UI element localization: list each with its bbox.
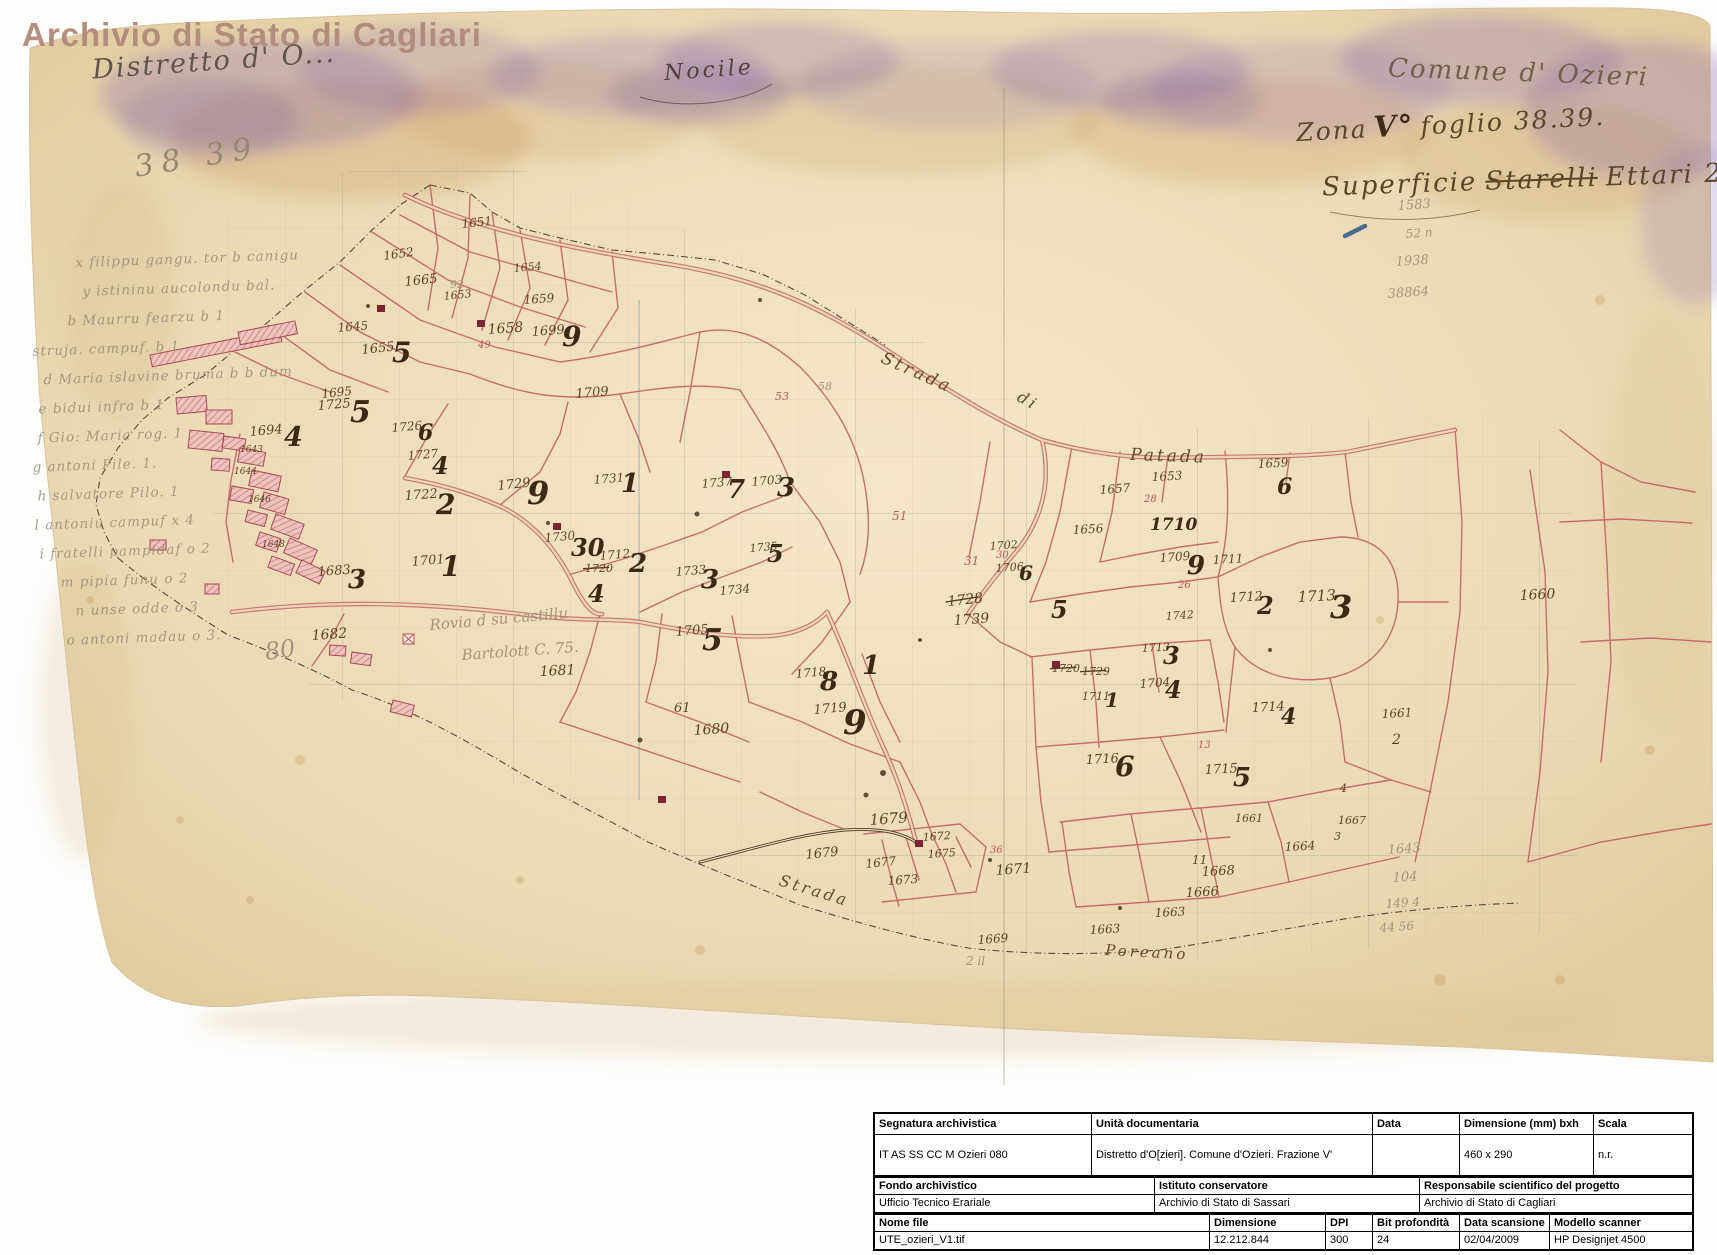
town-building bbox=[350, 652, 371, 666]
parcel-number: 7 bbox=[727, 475, 745, 505]
parcel-number: 1699 bbox=[531, 323, 565, 340]
parcel-number: 1663 bbox=[1154, 904, 1186, 920]
parcel-number: 104 bbox=[1392, 869, 1418, 886]
parcel-number: 28 bbox=[1143, 494, 1157, 505]
parcel-number: 1938 bbox=[1395, 253, 1429, 270]
parcel-number: 3 bbox=[348, 565, 366, 595]
table-value-distretto-d-o-zieri-comune-d-o: Distretto d'O[zieri]. Comune d'Ozieri. F… bbox=[1092, 1135, 1373, 1175]
table-value-460-x-290: 460 x 290 bbox=[1460, 1135, 1594, 1175]
parcel-number: 1657 bbox=[1099, 481, 1131, 497]
parcel-number: 9 bbox=[527, 474, 549, 512]
parcel-number: 1739 bbox=[953, 611, 990, 629]
parcel-number: 51 bbox=[892, 509, 907, 523]
building-marker bbox=[915, 840, 923, 847]
table-header-bit-profondit-: Bit profondità bbox=[1373, 1215, 1460, 1231]
parcel-number: 61 bbox=[674, 701, 691, 716]
parcel-number: 36 bbox=[990, 845, 1003, 856]
parcel-number: 1682 bbox=[311, 626, 348, 644]
parcel-number: 13 bbox=[1198, 740, 1211, 751]
parcel-number: 1663 bbox=[1089, 921, 1121, 937]
building-marker-cross bbox=[403, 634, 414, 644]
parcel-number: 1679 bbox=[869, 808, 909, 829]
table-header-responsabile-scientifico-del-p: Responsabile scientifico del progetto bbox=[1420, 1178, 1692, 1194]
parcel-number: 1643 bbox=[1387, 841, 1421, 858]
parcel-number: 1653 bbox=[1151, 468, 1183, 484]
parcel-number: 1712 bbox=[599, 546, 631, 563]
table-value-archivio-di-stato-di-cagliari: Archivio di Stato di Cagliari bbox=[1420, 1195, 1692, 1212]
parcel-number: 5 bbox=[1233, 763, 1251, 793]
building-marker bbox=[658, 796, 666, 803]
parcel-number: 2 bbox=[1256, 591, 1274, 620]
table-value-ute-ozieri-v1-tif: UTE_ozieri_V1.tif bbox=[875, 1232, 1210, 1249]
scan-metadata-table: Segnatura archivisticaUnità documentaria… bbox=[873, 1112, 1694, 1251]
margin-notes-list: x filippu gangu. tor b caniguy istininu … bbox=[23, 241, 313, 656]
parcel-number: 4 bbox=[432, 451, 449, 480]
table-value-n-r-: n.r. bbox=[1594, 1135, 1692, 1175]
parcel-number: 1668 bbox=[1201, 863, 1235, 880]
parcel-number: 1667 bbox=[1338, 814, 1366, 827]
parcel-number: 3 bbox=[1330, 588, 1352, 626]
parcel-number: 1659 bbox=[1257, 455, 1289, 471]
table-value-ufficio-tecnico-erariale: Ufficio Tecnico Erariale bbox=[875, 1195, 1155, 1212]
parcel-number: 1671 bbox=[995, 861, 1032, 879]
table-value-row: UTE_ozieri_V1.tif12.212.8443002402/04/20… bbox=[875, 1232, 1692, 1249]
parcel-number: 3 bbox=[701, 565, 719, 595]
parcel-number: 3 bbox=[777, 473, 795, 503]
parcel-number: 5 bbox=[392, 336, 411, 369]
parcel-number: 5 bbox=[767, 539, 784, 568]
parcel-number: 2 il bbox=[965, 954, 985, 968]
parcel-number: 9 bbox=[1187, 551, 1205, 581]
superficie-struck-word: Starelli bbox=[1477, 163, 1607, 197]
table-value-empty bbox=[1373, 1135, 1460, 1175]
parcel-number: 1659 bbox=[523, 291, 555, 307]
scanned-map-page: 1651165216541659166592165316451658491699… bbox=[0, 0, 1717, 1255]
table-header-fondo-archivistico: Fondo archivistico bbox=[875, 1178, 1155, 1194]
parcel-number: 1656 bbox=[1072, 521, 1104, 537]
table-value-row: IT AS SS CC M Ozieri 080Distretto d'O[zi… bbox=[875, 1135, 1692, 1176]
zona-number: V° bbox=[1367, 108, 1422, 145]
parcel-number: 6 bbox=[1019, 561, 1033, 585]
zona-word: Zona bbox=[1296, 114, 1369, 147]
parcel-number: 53 bbox=[775, 390, 789, 403]
superficie-word: Superficie bbox=[1322, 167, 1478, 202]
parcel-number: 1669 bbox=[977, 931, 1009, 947]
parcel-number: 44 56 bbox=[1378, 919, 1415, 935]
parcel-number: 1734 bbox=[719, 581, 751, 598]
table-header-istituto-conservatore: Istituto conservatore bbox=[1155, 1178, 1420, 1194]
parcel-number: 4 bbox=[1281, 704, 1296, 730]
parcel-number: 1660 bbox=[1519, 586, 1556, 604]
parcel-number: 4 bbox=[1165, 675, 1182, 704]
parcel-number: 52 n bbox=[1405, 225, 1433, 241]
parcel-number: 1702 bbox=[989, 538, 1018, 553]
parcel-number: 38864 bbox=[1387, 284, 1429, 302]
parcel-number: 2 bbox=[435, 488, 455, 521]
table-header-segnatura-archivistica: Segnatura archivistica bbox=[875, 1114, 1092, 1134]
table-header-row: Segnatura archivisticaUnità documentaria… bbox=[875, 1114, 1692, 1135]
building-marker bbox=[377, 305, 385, 312]
parcel-number: 1666 bbox=[1185, 884, 1219, 901]
parcel-number: 3 bbox=[1334, 830, 1341, 843]
table-value-hp-designjet-4500: HP Designjet 4500 bbox=[1550, 1232, 1692, 1249]
parcel-number: 9 bbox=[843, 703, 867, 743]
parcel-number: 149 4 bbox=[1385, 895, 1420, 911]
parcel-number: 1709 bbox=[575, 384, 609, 402]
parcel-number: 1658 bbox=[487, 320, 524, 338]
table-value-it-as-ss-cc-m-ozieri-080: IT AS SS CC M Ozieri 080 bbox=[875, 1135, 1092, 1175]
superficie-value: Ettari 296,04 bbox=[1605, 156, 1717, 193]
parcel-number: 1661 bbox=[1235, 812, 1263, 825]
parcel-number: 4 bbox=[588, 579, 605, 608]
parcel-number: 1645 bbox=[337, 318, 369, 335]
parcel-number: 1654 bbox=[513, 260, 542, 275]
parcel-number: 58 bbox=[818, 380, 832, 393]
road-label: Patada bbox=[1129, 445, 1207, 468]
table-header-dimensione: Dimensione bbox=[1210, 1215, 1326, 1231]
parcel-number: 1680 bbox=[693, 721, 730, 739]
parcel-number: 8 bbox=[819, 667, 838, 697]
parcel-number: 6 bbox=[418, 420, 433, 446]
parcel-number: 26 bbox=[1177, 580, 1191, 591]
parcel-number: 4 bbox=[1339, 782, 1347, 795]
parcel-number: 1 bbox=[1105, 688, 1119, 712]
parcel-number: 1731 bbox=[593, 470, 625, 487]
parcel-number: 1725 bbox=[317, 396, 351, 414]
table-header-dpi: DPI bbox=[1326, 1215, 1373, 1231]
parcel-number: 9 bbox=[562, 320, 581, 353]
parcel-number: 1683 bbox=[317, 563, 351, 580]
parcel-number: 49 bbox=[477, 340, 491, 351]
table-value-archivio-di-stato-di-sassari: Archivio di Stato di Sassari bbox=[1155, 1195, 1420, 1212]
table-header-nome-file: Nome file bbox=[875, 1215, 1210, 1231]
table-header-row: Nome fileDimensioneDPIBit profonditàData… bbox=[875, 1213, 1692, 1232]
parcel-number: 2 bbox=[1391, 732, 1401, 748]
parcel-number: 1722 bbox=[404, 487, 438, 504]
parcel-number: 1711 bbox=[1212, 551, 1243, 567]
table-header-scala: Scala bbox=[1594, 1114, 1692, 1134]
parcel-number: 1 bbox=[862, 651, 880, 681]
table-header-unit-documentaria: Unità documentaria bbox=[1092, 1114, 1373, 1134]
parcel-number: 5 bbox=[1051, 595, 1068, 624]
table-value-24: 24 bbox=[1373, 1232, 1460, 1249]
table-header-modello-scanner: Modello scanner bbox=[1550, 1215, 1692, 1231]
parcel-number: 1742 bbox=[1165, 608, 1194, 623]
parcel-number: 5 bbox=[702, 623, 723, 658]
parcel-number: 1 bbox=[621, 469, 639, 499]
parcel-number: 1661 bbox=[1381, 705, 1412, 721]
parcel-number: 1710 bbox=[1150, 515, 1197, 535]
parcel-number: 1673 bbox=[887, 872, 919, 888]
table-header-data: Data bbox=[1373, 1114, 1460, 1134]
parcel-number: 5 bbox=[350, 395, 371, 430]
table-value-12-212-844: 12.212.844 bbox=[1210, 1232, 1326, 1249]
parcel-number: 6 bbox=[1277, 474, 1292, 500]
table-header-dimensione-mm-bxh: Dimensione (mm) bxh bbox=[1460, 1114, 1594, 1134]
parcel-number: 1664 bbox=[1284, 838, 1315, 854]
parcel-number: 1681 bbox=[539, 662, 575, 680]
parcel-number: 1675 bbox=[927, 846, 956, 861]
table-header-data-scansione: Data scansione bbox=[1460, 1215, 1550, 1231]
table-value-02-04-2009: 02/04/2009 bbox=[1460, 1232, 1550, 1249]
parcel-number: 1 bbox=[441, 550, 460, 583]
building-marker bbox=[477, 320, 485, 327]
table-value-row: Ufficio Tecnico ErarialeArchivio di Stat… bbox=[875, 1195, 1692, 1213]
town-building bbox=[329, 645, 346, 656]
parcel-number: 3 bbox=[1163, 641, 1180, 670]
parcel-number: 2 bbox=[628, 549, 647, 579]
parcel-number: 1672 bbox=[922, 829, 951, 844]
parcel-number: 31 bbox=[964, 554, 979, 568]
table-value-300: 300 bbox=[1326, 1232, 1373, 1249]
parcel-number: 6 bbox=[1115, 750, 1134, 783]
table-header-row: Fondo archivisticoIstituto conservatoreR… bbox=[875, 1176, 1692, 1195]
